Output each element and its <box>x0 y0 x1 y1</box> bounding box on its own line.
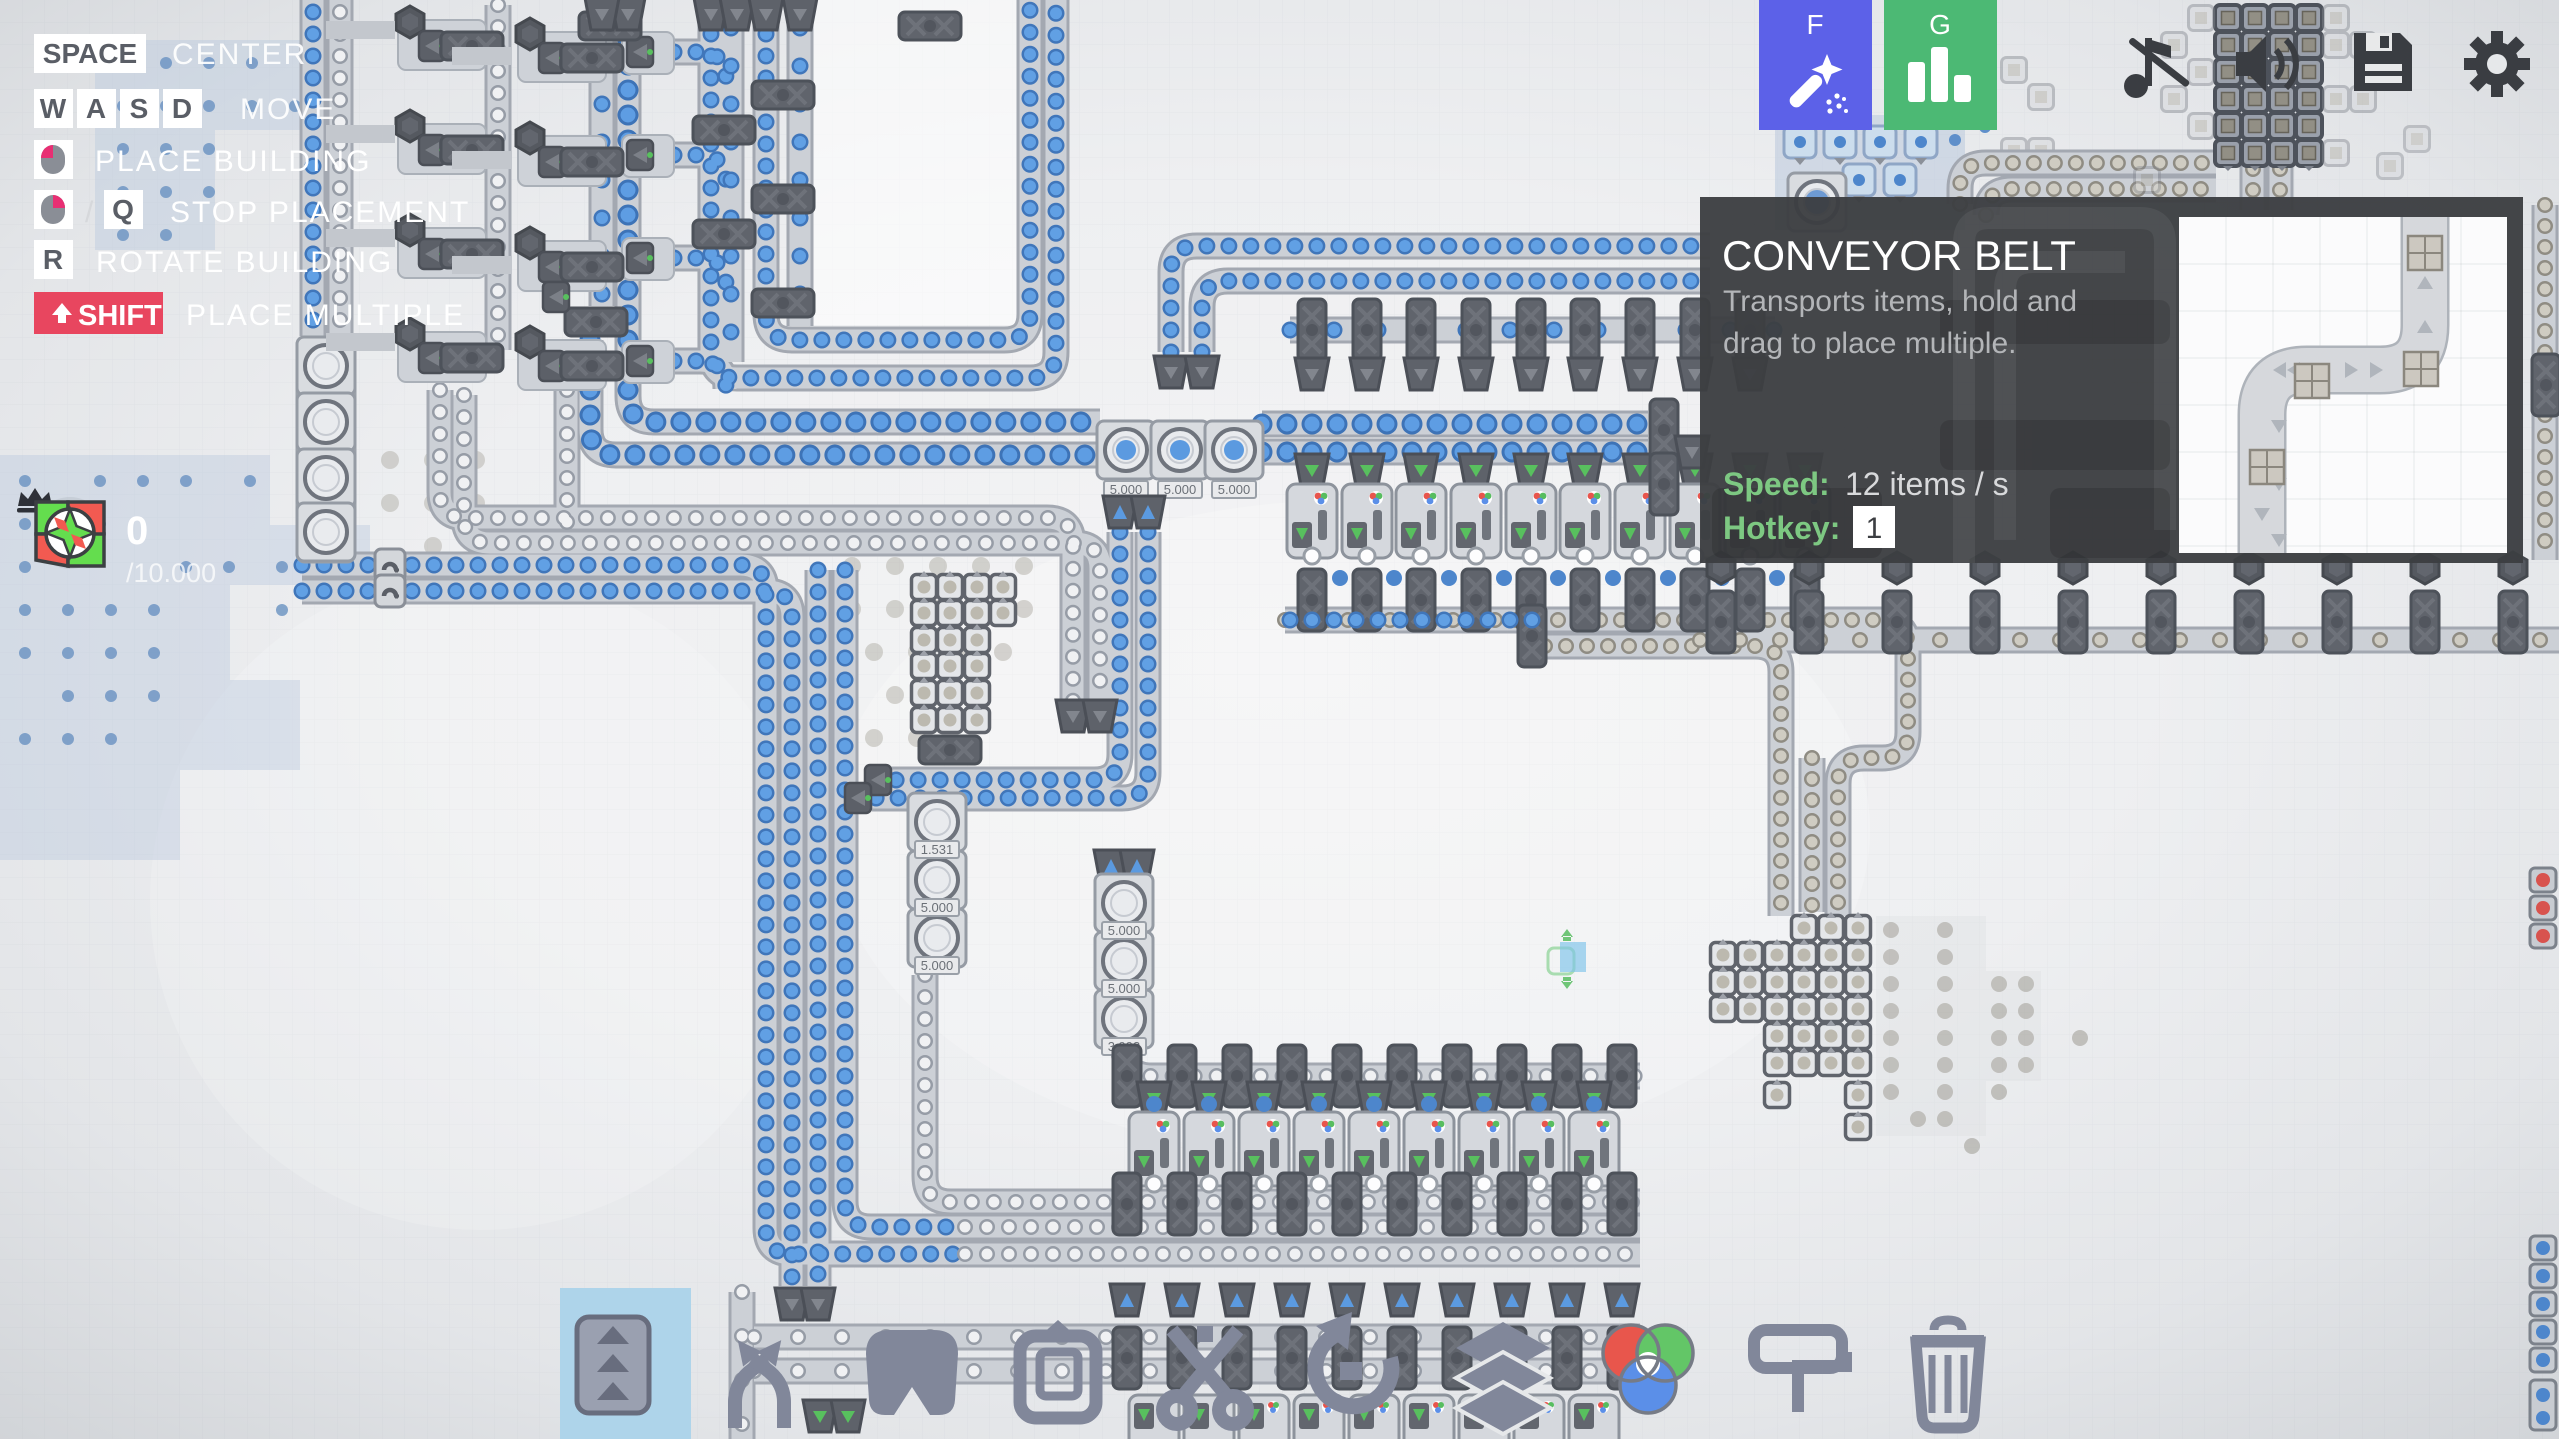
svg-text:drag to place multiple.: drag to place multiple. <box>1723 327 2017 360</box>
svg-text:A: A <box>86 93 106 124</box>
svg-text:STOP PLACEMENT: STOP PLACEMENT <box>170 196 470 229</box>
svg-text:R: R <box>43 244 63 275</box>
svg-text:CONVEYOR BELT: CONVEYOR BELT <box>1722 232 2076 279</box>
svg-text:5.000: 5.000 <box>921 958 954 973</box>
svg-text:Hotkey:: Hotkey: <box>1723 510 1840 546</box>
svg-text:12 items / s: 12 items / s <box>1845 466 2009 502</box>
svg-text:5.000: 5.000 <box>1218 482 1251 497</box>
svg-text:S: S <box>130 93 149 124</box>
svg-text:G: G <box>1929 9 1951 40</box>
svg-text:SHIFT: SHIFT <box>78 300 162 332</box>
svg-text:ROTATE BUILDING: ROTATE BUILDING <box>96 246 393 279</box>
svg-text:W: W <box>40 93 67 124</box>
svg-text:PLACE BUILDING: PLACE BUILDING <box>95 145 371 178</box>
svg-text:CENTER: CENTER <box>172 38 307 71</box>
svg-text:5.000: 5.000 <box>921 900 954 915</box>
svg-text:1: 1 <box>1866 512 1883 545</box>
svg-text:MOVE: MOVE <box>240 93 336 126</box>
svg-text:/: / <box>85 196 94 229</box>
svg-text:D: D <box>172 93 192 124</box>
svg-text:PLACE MULTIPLE: PLACE MULTIPLE <box>186 299 465 332</box>
svg-text:Transports items, hold and: Transports items, hold and <box>1723 285 2077 318</box>
svg-text:1.531: 1.531 <box>921 842 954 857</box>
svg-text:5.000: 5.000 <box>1164 482 1197 497</box>
svg-text:F: F <box>1806 9 1823 40</box>
svg-text:/10.000: /10.000 <box>126 558 216 588</box>
svg-text:0: 0 <box>126 509 148 553</box>
svg-text:5.000: 5.000 <box>1108 981 1141 996</box>
svg-text:SPACE: SPACE <box>43 38 137 69</box>
svg-text:Speed:: Speed: <box>1723 466 1830 502</box>
svg-text:5.000: 5.000 <box>1108 923 1141 938</box>
svg-text:Q: Q <box>112 194 134 225</box>
